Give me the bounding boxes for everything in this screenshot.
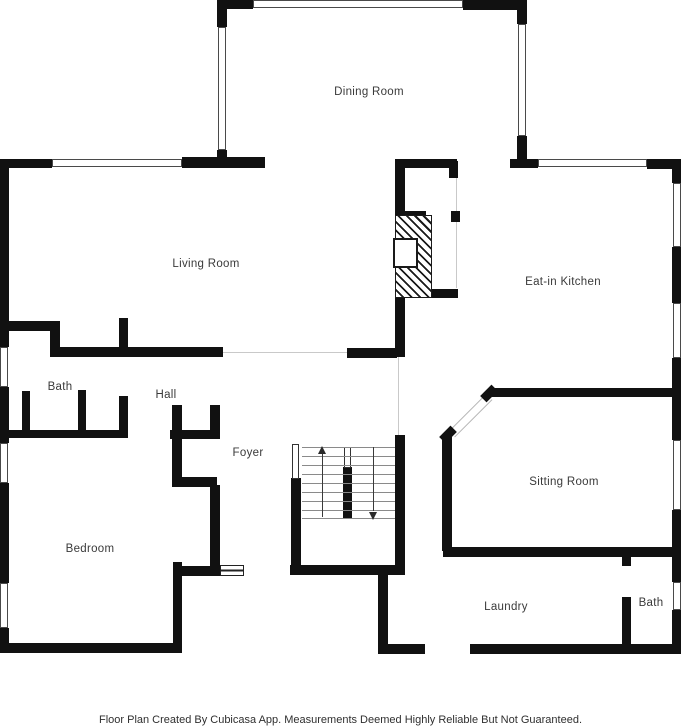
room-label-dining-room: Dining Room: [334, 86, 404, 98]
room-label-hall: Hall: [155, 389, 176, 401]
room-label-bath: Bath: [639, 597, 664, 609]
wall: [291, 478, 301, 575]
open-boundary-line: [398, 357, 399, 435]
room-label-laundry: Laundry: [484, 601, 528, 613]
stair-tread: [302, 474, 395, 475]
window: [52, 159, 182, 167]
window: [538, 159, 647, 167]
wall: [0, 643, 182, 653]
wall: [451, 211, 460, 222]
stair-tread: [302, 501, 395, 502]
wall: [290, 565, 405, 575]
room-label-living-room: Living Room: [172, 258, 239, 270]
stair-down-arrow-icon: [369, 512, 377, 520]
window: [673, 303, 681, 358]
disclaimer-text: Floor Plan Created By Cubicasa App. Meas…: [99, 714, 582, 726]
wall: [443, 547, 681, 557]
stair-tread: [302, 518, 395, 519]
wall: [347, 348, 397, 358]
stair-tread: [302, 465, 395, 466]
wall: [50, 347, 223, 357]
floor-plan: Floor Plan Created By Cubicasa App. Meas…: [0, 0, 681, 727]
window: [673, 440, 681, 510]
room-label-eat-in-kitchen: Eat-in Kitchen: [525, 276, 601, 288]
window: [518, 24, 526, 136]
open-boundary-line: [223, 352, 347, 353]
wall: [395, 435, 405, 575]
window: [253, 0, 463, 8]
wall: [672, 159, 681, 183]
fireplace-firebox: [393, 238, 418, 268]
window: [673, 183, 681, 247]
stair-direction-shaft: [322, 453, 323, 517]
wall: [510, 159, 538, 168]
stair-direction-shaft: [373, 447, 374, 511]
stair-tread: [302, 447, 395, 448]
wall: [182, 157, 265, 168]
wall: [492, 388, 681, 397]
stair-tread: [302, 483, 395, 484]
window: [0, 583, 8, 628]
wall: [3, 430, 128, 438]
wall: [470, 644, 681, 654]
wall: [210, 485, 220, 575]
wall: [170, 430, 220, 439]
room-label-foyer: Foyer: [233, 447, 264, 459]
window: [0, 347, 8, 387]
room-label-sitting-room: Sitting Room: [529, 476, 598, 488]
wall: [442, 437, 452, 551]
door-threshold: [220, 565, 244, 576]
wall: [672, 247, 681, 303]
wall: [449, 161, 458, 178]
wall: [119, 318, 128, 357]
stair-railing: [292, 444, 299, 479]
wall: [0, 483, 9, 583]
wall: [395, 159, 457, 168]
wall: [672, 557, 681, 582]
stair-tread: [302, 510, 395, 511]
room-label-bedroom: Bedroom: [66, 543, 115, 555]
window: [0, 443, 8, 483]
wall: [672, 358, 681, 440]
open-boundary-line: [456, 222, 457, 288]
room-label-bath: Bath: [48, 381, 73, 393]
wall: [217, 0, 227, 27]
wall: [180, 566, 222, 576]
wall: [378, 573, 388, 650]
open-boundary-line: [456, 178, 457, 211]
wall: [463, 0, 525, 10]
wall: [622, 556, 631, 566]
wall: [9, 321, 60, 331]
wall: [622, 597, 631, 647]
wall: [395, 298, 405, 357]
wall: [517, 0, 527, 24]
stair-tread: [302, 492, 395, 493]
window: [218, 27, 226, 150]
stair-up-arrow-icon: [318, 446, 326, 454]
wall: [0, 159, 9, 347]
wall: [172, 405, 182, 487]
stair-tread: [302, 456, 395, 457]
window: [673, 582, 681, 610]
